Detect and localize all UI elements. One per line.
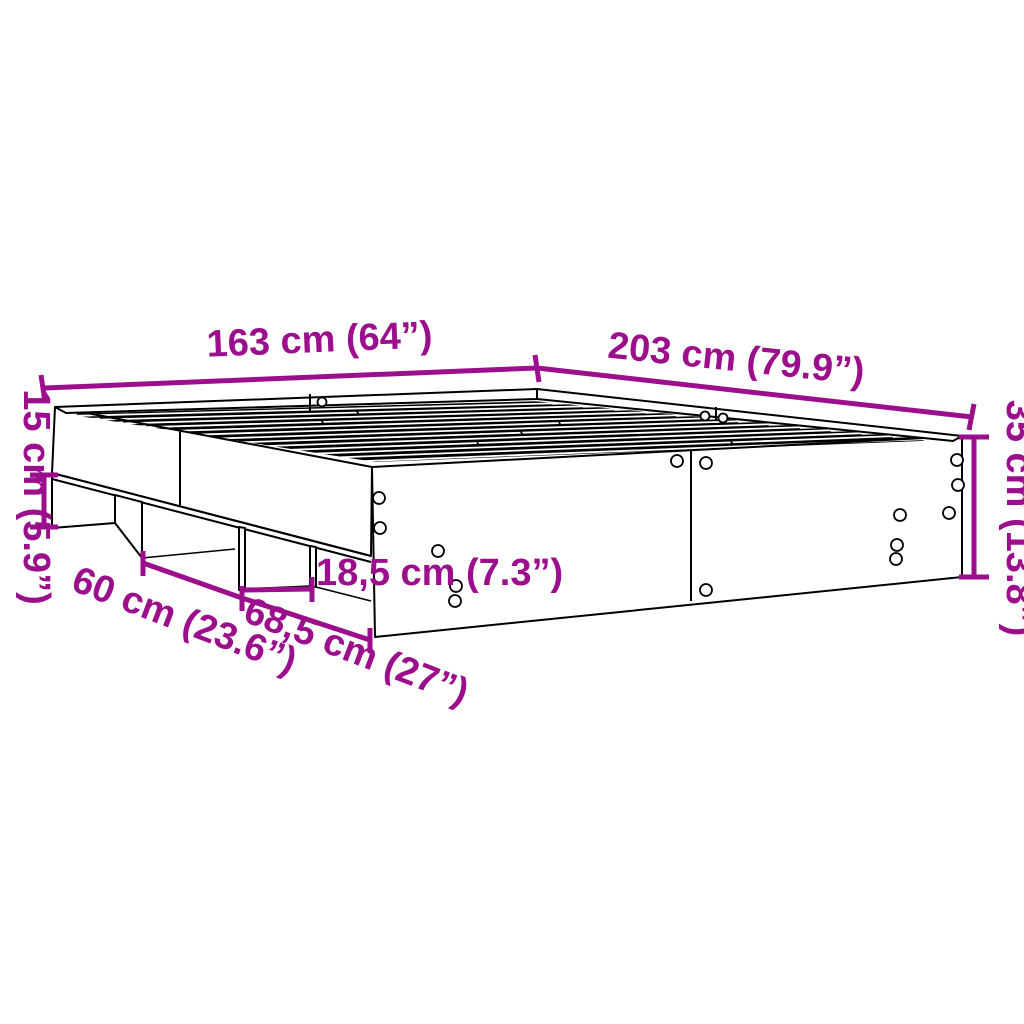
dim-width-label: 163 cm (64”) — [206, 314, 434, 365]
side-panel — [372, 436, 962, 637]
base-support-2 — [239, 527, 245, 591]
dim-small-gap-label: 18,5 cm (7.3”) — [316, 552, 563, 594]
diagram-canvas: 163 cm (64”) 203 cm (79.9”) 35 cm (13.8”… — [0, 0, 1024, 1024]
dim-height-label: 35 cm (13.8”) — [998, 400, 1024, 637]
bed-frame-dimension-diagram: 163 cm (64”) 203 cm (79.9”) 35 cm (13.8”… — [0, 0, 1024, 1024]
dim-base-height-label: 15 cm (5.9”) — [15, 389, 57, 604]
back-rail-left — [55, 389, 537, 413]
base-support-1 — [115, 495, 142, 558]
dim-length-label: 203 cm (79.9”) — [606, 325, 867, 394]
